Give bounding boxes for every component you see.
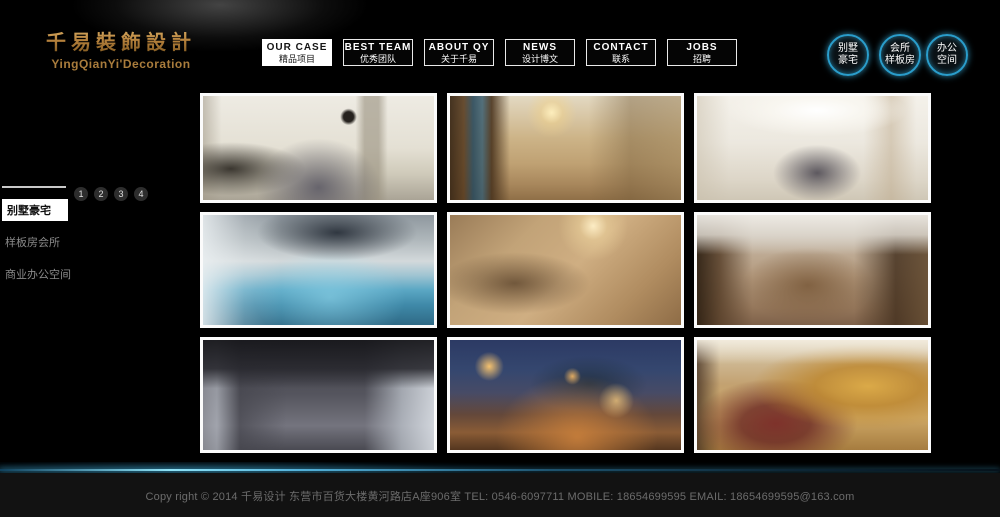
gallery-item-white-dining-room[interactable] bbox=[694, 93, 931, 203]
gallery-item-chinese-living-room[interactable] bbox=[694, 212, 931, 328]
nav-item-contact[interactable]: CONTACT 联系 bbox=[586, 39, 656, 66]
brand-logo-english: YingQianYi'Decoration bbox=[26, 57, 216, 71]
quick-link-line2: 样板房 bbox=[885, 55, 915, 67]
gallery-item-dark-penthouse[interactable] bbox=[200, 337, 437, 453]
nav-label-en: BEST TEAM bbox=[344, 42, 412, 54]
footer-light-streak bbox=[0, 469, 1000, 471]
quick-link-villa[interactable]: 别墅 豪宅 bbox=[827, 34, 869, 76]
nav-label-cn: 优秀团队 bbox=[344, 54, 412, 65]
gallery-item-indoor-pool[interactable] bbox=[200, 212, 437, 328]
nav-item-news[interactable]: NEWS 设计博文 bbox=[505, 39, 575, 66]
nav-label-cn: 精品项目 bbox=[263, 54, 331, 65]
sidebar-divider bbox=[2, 186, 66, 188]
main-nav: OUR CASE 精品项目 BEST TEAM 优秀团队 ABOUT QY 关于… bbox=[262, 39, 737, 66]
nav-label-cn: 联系 bbox=[587, 54, 655, 65]
nav-item-jobs[interactable]: JOBS 招聘 bbox=[667, 39, 737, 66]
page: 千易裝飾設計 YingQianYi'Decoration OUR CASE 精品… bbox=[0, 0, 1000, 517]
quick-link-line1: 会所 bbox=[890, 43, 910, 55]
gallery-item-modern-living-room[interactable] bbox=[200, 93, 437, 203]
brand-logo-chinese: 千易裝飾設計 bbox=[26, 26, 216, 55]
gallery-item-staircase-hall[interactable] bbox=[447, 212, 684, 328]
nav-label-en: CONTACT bbox=[587, 42, 655, 54]
nav-item-best-team[interactable]: BEST TEAM 优秀团队 bbox=[343, 39, 413, 66]
quick-link-office[interactable]: 办公 空间 bbox=[926, 34, 968, 76]
nav-label-cn: 设计博文 bbox=[506, 54, 574, 65]
copyright-text: Copy right © 2014 千易设计 东营市百货大楼黄河路店A座906室… bbox=[146, 488, 855, 504]
nav-item-our-case[interactable]: OUR CASE 精品项目 bbox=[262, 39, 332, 66]
quick-link-line2: 豪宅 bbox=[838, 55, 858, 67]
sidebar-item-commercial-office[interactable]: 商业办公空间 bbox=[0, 263, 70, 285]
footer: Copy right © 2014 千易设计 东营市百货大楼黄河路店A座906室… bbox=[0, 473, 1000, 517]
nav-item-about[interactable]: ABOUT QY 关于千易 bbox=[424, 39, 494, 66]
sidebar-item-villa[interactable]: 别墅豪宅 bbox=[2, 199, 68, 221]
project-gallery bbox=[200, 93, 931, 453]
brand-logo[interactable]: 千易裝飾設計 YingQianYi'Decoration bbox=[26, 26, 216, 71]
quick-link-line1: 办公 bbox=[937, 43, 957, 55]
quick-link-line1: 别墅 bbox=[838, 43, 858, 55]
nav-label-cn: 关于千易 bbox=[425, 54, 493, 65]
quick-link-line2: 空间 bbox=[937, 55, 957, 67]
gallery-item-night-courtyard[interactable] bbox=[447, 337, 684, 453]
nav-label-en: OUR CASE bbox=[263, 42, 331, 54]
nav-label-en: ABOUT QY bbox=[425, 42, 493, 54]
sidebar-item-showroom-club[interactable]: 样板房会所 bbox=[0, 231, 70, 253]
nav-label-cn: 招聘 bbox=[668, 54, 736, 65]
quick-link-club-showroom[interactable]: 会所 样板房 bbox=[879, 34, 921, 76]
sidebar-menu: 别墅豪宅 样板房会所 商业办公空间 bbox=[0, 199, 190, 295]
nav-label-en: JOBS bbox=[668, 42, 736, 54]
gallery-item-luxury-living-room[interactable] bbox=[447, 93, 684, 203]
nav-label-en: NEWS bbox=[506, 42, 574, 54]
gallery-item-golden-hall[interactable] bbox=[694, 337, 931, 453]
